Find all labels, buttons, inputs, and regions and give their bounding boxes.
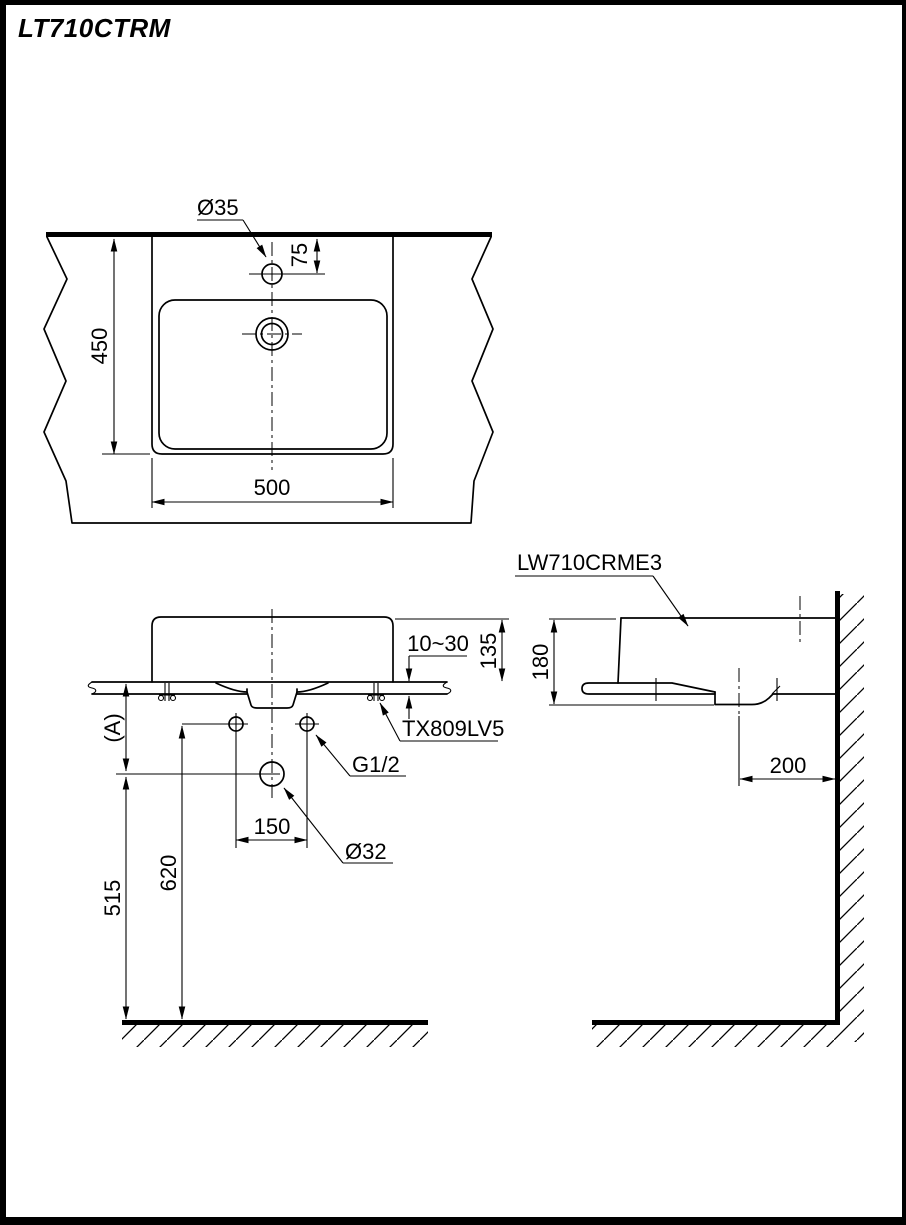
- front-view: (A) 515 620 150 10~30 135 TX809LV5 G1/2: [88, 609, 509, 1047]
- dim-10-30-label: 10~30: [407, 631, 469, 656]
- technical-drawing: Ø35 75 450 500: [6, 5, 902, 1217]
- label-basin-model: LW710CRME3: [517, 550, 662, 575]
- top-view-wall-line: [46, 232, 492, 237]
- top-view: Ø35 75 450 500: [44, 195, 493, 523]
- dim-180-label: 180: [528, 644, 553, 681]
- front-view-floor-line: [122, 1020, 428, 1025]
- front-view-floor-hatch: [122, 1025, 428, 1047]
- side-view: LW710CRME3 180 200: [515, 550, 864, 1047]
- dim-500-label: 500: [254, 475, 291, 500]
- bowl-underside-right: [297, 683, 328, 692]
- label-drain-dia: Ø32: [345, 839, 387, 864]
- side-drain-boss: [715, 692, 836, 705]
- dim-A-label: (A): [100, 713, 125, 742]
- drain-dia-leader: [284, 788, 343, 863]
- fixing-bolt-left: [159, 683, 176, 701]
- side-body-left: [618, 618, 621, 683]
- side-view-floor-line: [592, 1020, 840, 1025]
- dim-135-label: 135: [476, 633, 501, 670]
- label-faucet-dia: Ø35: [197, 195, 239, 220]
- side-rim-top: [618, 683, 715, 692]
- bowl-underside-left: [216, 683, 247, 692]
- side-view-wall-hatch: [840, 594, 864, 1042]
- dim-515-label: 515: [100, 880, 125, 917]
- supply-thread-leader: [316, 735, 350, 776]
- label-bolt-model: TX809LV5: [402, 716, 504, 741]
- side-view-wall-line: [835, 591, 840, 1025]
- drawing-page: LT710CTRM: [0, 0, 906, 1225]
- dim-200-label: 200: [770, 753, 807, 778]
- counter-break-right: [443, 682, 451, 694]
- fixing-bolt-right: [368, 683, 385, 701]
- counter-break-left: [88, 682, 96, 694]
- side-view-floor-hatch: [592, 1025, 840, 1047]
- dim-150-label: 150: [254, 814, 291, 839]
- bolt-model-leader: [380, 703, 400, 741]
- label-supply-thread: G1/2: [352, 752, 400, 777]
- dim-450-label: 450: [87, 328, 112, 365]
- side-bolt-clip: [772, 686, 780, 694]
- basin-inner-outline: [159, 300, 387, 449]
- dim-75-label: 75: [287, 243, 312, 267]
- dim-620-label: 620: [156, 855, 181, 892]
- faucet-dia-leader: [243, 220, 266, 257]
